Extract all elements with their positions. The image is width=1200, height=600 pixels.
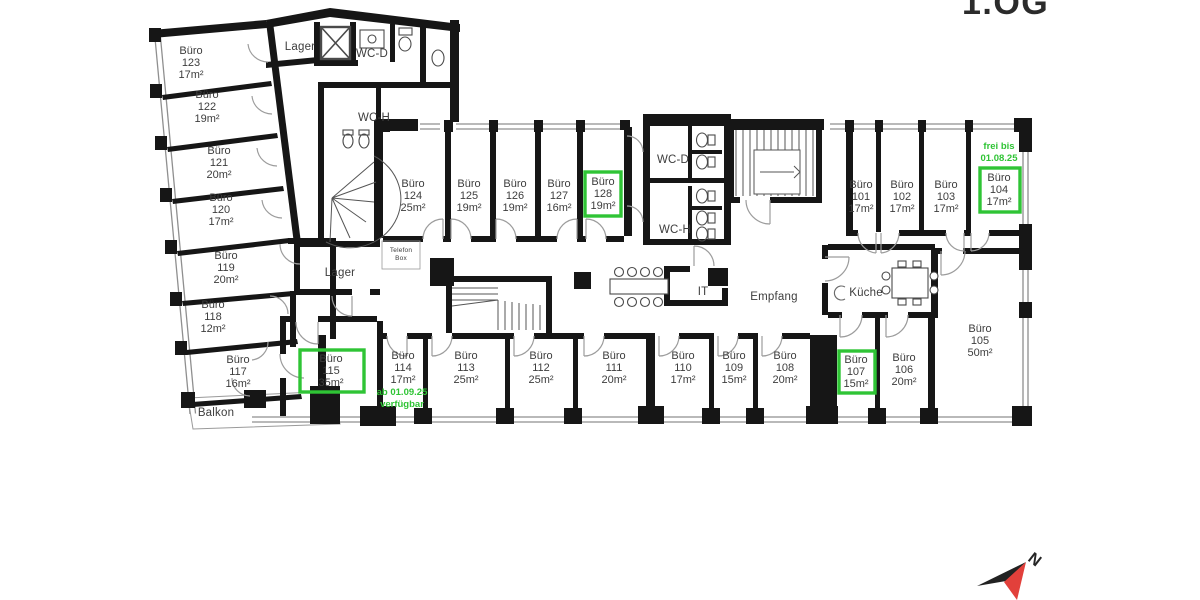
room-label-123: Büro12317m² — [178, 45, 203, 81]
availability-note-114: ab 01.09.25 verfügbar — [377, 387, 428, 410]
room-label-112: Büro11225m² — [528, 350, 553, 386]
room-label-102: Büro10217m² — [889, 179, 914, 215]
room-label-104: Büro10417m² — [986, 172, 1011, 208]
room-label-127: Büro12716m² — [546, 178, 571, 214]
area-label-balkon: Balkon — [198, 407, 234, 419]
spiral-stair-icon — [326, 156, 401, 248]
floorplan-svg: N — [0, 0, 1200, 600]
room-label-119: Büro11920m² — [213, 250, 238, 286]
area-label-wc-d-top: WC-D — [356, 48, 388, 60]
area-label-kueche: Küche — [849, 287, 883, 299]
room-label-126: Büro12619m² — [502, 178, 527, 214]
room-label-101: Büro10117m² — [848, 179, 873, 215]
compass: N — [977, 550, 1044, 600]
area-label-lager-top: Lager — [285, 41, 315, 53]
room-label-125: Büro12519m² — [456, 178, 481, 214]
room-label-105: Büro10550m² — [967, 323, 992, 359]
room-label-113: Büro11325m² — [453, 350, 478, 386]
room-label-118: Büro11812m² — [200, 299, 225, 335]
compass-north-label: N — [1025, 550, 1045, 571]
elevator-icon — [321, 27, 350, 59]
area-label-wc-h-top: WC-H — [358, 112, 390, 124]
floorplan-page: N Büro12317m²Büro12219m²Büro12120m²Büro1… — [0, 0, 1200, 600]
conference-table-icon — [610, 268, 668, 307]
room-label-107: Büro10715m² — [843, 354, 868, 390]
room-label-124: Büro12425m² — [400, 178, 425, 214]
toilet-icons — [697, 133, 716, 241]
area-label-wc-d-mid: WC-D — [657, 154, 689, 166]
area-label-empfang: Empfang — [750, 291, 797, 303]
floor-title: 1.OG — [962, 0, 1049, 23]
room-label-111: Büro11120m² — [601, 350, 626, 386]
room-label-117: Büro11716m² — [225, 354, 250, 390]
room-label-122: Büro12219m² — [194, 89, 219, 125]
main-stair-icon — [736, 130, 813, 196]
kitchen-table-icon — [882, 261, 938, 305]
room-label-114: Büro11417m² — [390, 350, 415, 386]
kitchen-sink-icon — [834, 286, 845, 300]
room-label-128: Büro12819m² — [590, 176, 615, 212]
room-label-106: Büro10620m² — [891, 352, 916, 388]
room-label-103: Büro10317m² — [933, 179, 958, 215]
room-label-121: Büro12120m² — [206, 145, 231, 181]
availability-note-104: frei bis 01.08.25 — [981, 141, 1018, 164]
area-label-it: IT — [698, 286, 709, 298]
area-label-wc-h-mid: WC-H — [659, 224, 691, 236]
room-label-120: Büro12017m² — [208, 192, 233, 228]
room-label-110: Büro11017m² — [670, 350, 695, 386]
area-label-telefon-box: Telefon Box — [390, 247, 412, 263]
room-label-109: Büro10915m² — [721, 350, 746, 386]
room-label-115: Büro11535m² — [318, 353, 343, 389]
area-label-lager-mid: Lager — [325, 267, 355, 279]
room-label-108: Büro10820m² — [772, 350, 797, 386]
side-stair-icon — [452, 288, 540, 330]
